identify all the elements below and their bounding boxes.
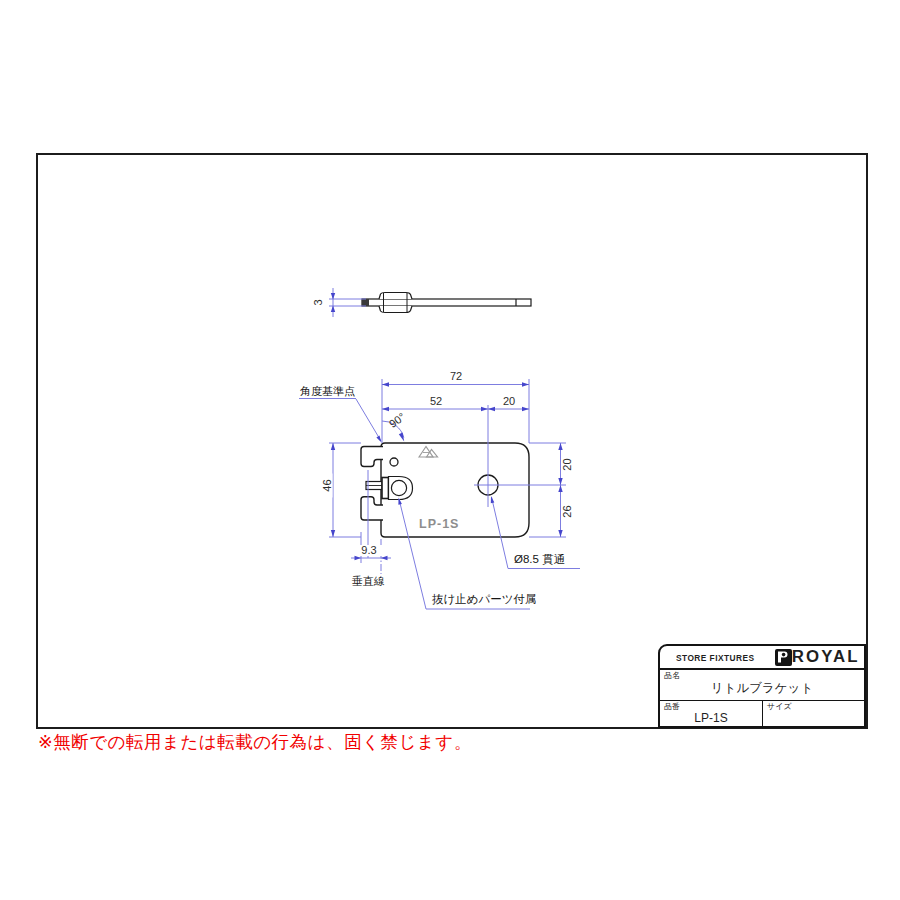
label-vertical-line: 垂直線 bbox=[352, 576, 385, 587]
royal-brand-text: ROYAL bbox=[792, 649, 860, 665]
size-cell: サイズ bbox=[763, 701, 864, 727]
dim-hook-depth: 9.3 bbox=[355, 545, 383, 556]
model-stamp: LP-1S bbox=[419, 518, 459, 531]
label-angle-reference: 角度基準点 bbox=[300, 386, 355, 397]
product-name-value: リトルブラケット bbox=[660, 682, 864, 695]
copyright-warning: ※無断での転用または転載の行為は、固く禁じます。 bbox=[38, 731, 472, 754]
label-retainer: 抜け止めパーツ付属 bbox=[432, 594, 537, 606]
dim-hole-bottom: 26 bbox=[562, 500, 573, 524]
royal-logo-icon bbox=[775, 649, 792, 666]
dim-right-width: 20 bbox=[498, 396, 520, 407]
product-code-label: 品番 bbox=[664, 703, 680, 711]
dim-left-width: 52 bbox=[425, 396, 447, 407]
dim-thickness: 3 bbox=[313, 298, 324, 306]
dim-total-width: 72 bbox=[445, 371, 467, 382]
dim-hole-top: 20 bbox=[562, 453, 573, 477]
store-fixtures-label: STORE FIXTURES bbox=[676, 652, 754, 663]
title-block-name-row: 品名 リトルブラケット bbox=[660, 670, 864, 701]
product-name-label: 品名 bbox=[664, 672, 680, 680]
product-code-value: LP-1S bbox=[660, 712, 762, 724]
size-label: サイズ bbox=[767, 703, 792, 711]
title-block-code-row: 品番 LP-1S サイズ bbox=[660, 701, 864, 727]
label-through-hole: Ø8.5 貫通 bbox=[514, 554, 565, 566]
drawing-frame bbox=[36, 153, 868, 729]
title-block: STORE FIXTURES ROYAL 品名 リトルブラケット 品番 LP-1… bbox=[658, 644, 866, 728]
product-code-cell: 品番 LP-1S bbox=[660, 701, 763, 727]
title-block-header: STORE FIXTURES ROYAL bbox=[660, 646, 864, 670]
royal-logo: ROYAL bbox=[775, 649, 860, 666]
dim-height: 46 bbox=[322, 474, 333, 498]
